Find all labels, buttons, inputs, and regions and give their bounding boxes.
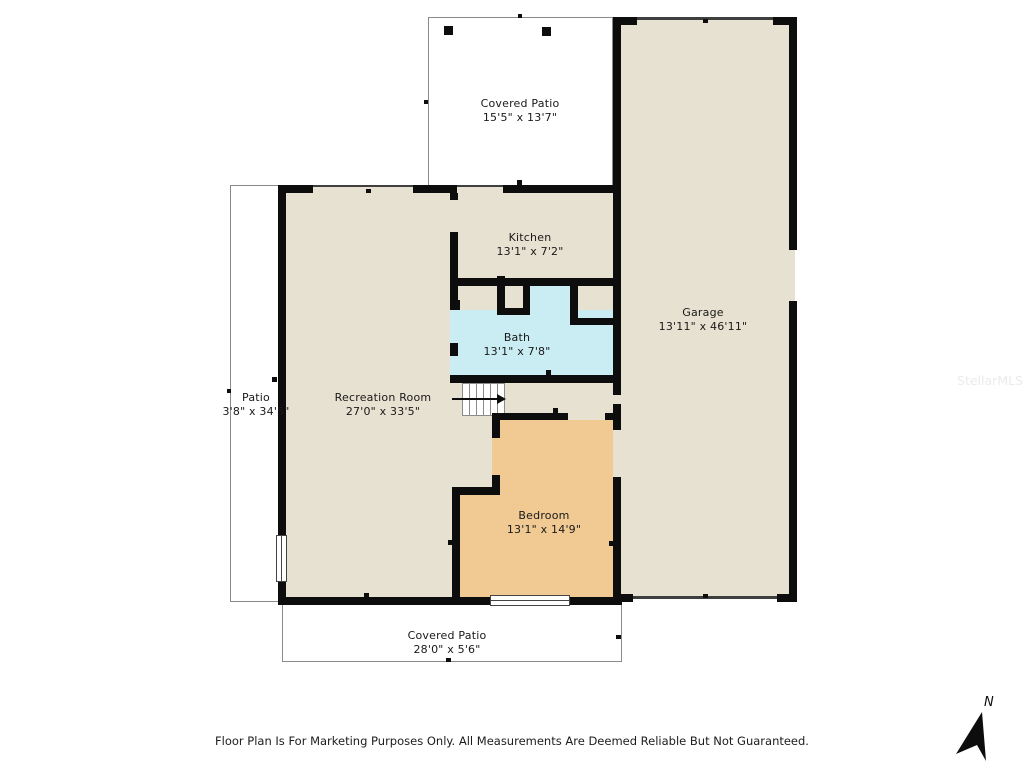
room-dims: 28'0" x 5'6" [367,643,527,657]
window-sash [491,600,569,601]
dimension-tick [446,658,451,662]
north-label: N [984,695,994,710]
room-label-covered-patio-bottom: Covered Patio 28'0" x 5'6" [367,629,527,656]
dimension-tick [517,180,522,185]
room-dims: 13'11" x 46'11" [633,320,773,334]
wall-segment [450,375,618,383]
room-name: Covered Patio [367,629,527,643]
room-dims: 13'1" x 7'8" [447,345,587,359]
room-name: Garage [633,306,773,320]
wall-segment [278,193,286,535]
dimension-tick [616,635,621,639]
window-sash [281,536,282,581]
north-arrow-icon [956,712,986,761]
wall-segment [570,284,578,325]
wall-segment [789,17,797,250]
room-label-recreation-room: Recreation Room 27'0" x 33'5" [300,391,466,418]
room-label-covered-patio-top: Covered Patio 15'5" x 13'7" [430,97,610,124]
room-label-patio: Patio 3'8" x 34'5" [216,391,296,418]
room-name: Covered Patio [430,97,610,111]
wall-opening-line [457,185,503,187]
room-name: Recreation Room [300,391,466,405]
room-label-bath: Bath 13'1" x 7'8" [447,331,587,358]
wall-segment [452,487,460,600]
window [276,535,287,582]
room-name: Bedroom [474,509,614,523]
room-dims: 13'1" x 7'2" [460,245,600,259]
room-label-kitchen: Kitchen 13'1" x 7'2" [460,231,600,258]
room-dims: 13'1" x 14'9" [474,523,614,537]
wall-segment [578,318,613,325]
wall-segment [613,17,621,395]
wall-segment [613,477,621,602]
wall-segment [450,193,458,200]
room-dims: 3'8" x 34'5" [216,405,296,419]
room-dims: 27'0" x 33'5" [300,405,466,419]
room-label-bedroom: Bedroom 13'1" x 14'9" [474,509,614,536]
patio-post [444,26,453,35]
wall-segment [613,594,633,602]
room-label-garage: Garage 13'11" x 46'11" [633,306,773,333]
dimension-tick [703,19,708,23]
disclaimer-text: Floor Plan Is For Marketing Purposes Onl… [0,734,1024,748]
dimension-tick [448,540,452,545]
room-name: Patio [216,391,296,405]
wall-segment [497,276,505,308]
wall-segment [523,284,530,310]
wall-segment [413,185,457,193]
dimension-tick [366,189,371,193]
room-name: Bath [447,331,587,345]
patio-post [542,27,551,36]
wall-segment [492,413,568,420]
wall-segment [503,185,618,193]
watermark: StellarMLS [953,373,1023,388]
stair-arrowhead-icon [497,394,506,404]
wall-segment [777,594,797,602]
wall-opening-line [313,185,413,187]
floor-plan: Covered Patio 15'5" x 13'7" Kitchen 13'1… [0,0,1024,768]
dimension-tick [546,370,551,375]
room-dims: 15'5" x 13'7" [430,111,610,125]
north-arrow: N [948,692,1012,766]
bath-floor-upper [528,286,570,312]
dimension-tick [553,408,558,413]
dimension-tick [272,377,277,382]
wall-segment [278,185,313,193]
wall-segment [450,300,460,310]
window [490,595,570,606]
dimension-tick [518,14,522,18]
dimension-tick [424,100,428,104]
dimension-tick [609,541,613,546]
dimension-tick [703,594,708,598]
dimension-tick [364,593,369,597]
wall-segment [450,232,458,310]
wall-segment [605,413,613,420]
wall-segment [450,278,618,286]
wall-segment [789,301,797,602]
wall-segment [613,404,621,430]
wall-segment [492,413,500,438]
room-name: Kitchen [460,231,600,245]
